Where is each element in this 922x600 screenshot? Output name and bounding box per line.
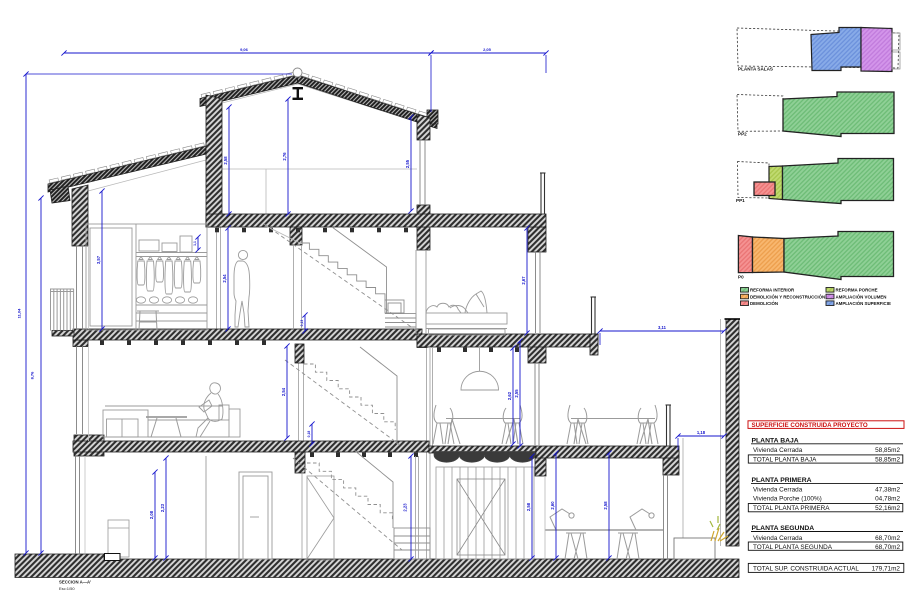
svg-text:AMPLIACIÓN VOLUMEN: AMPLIACIÓN VOLUMEN (836, 294, 887, 299)
svg-text:9,06: 9,06 (240, 47, 249, 52)
svg-text:179,71m2: 179,71m2 (872, 566, 901, 573)
svg-text:PP2: PP2 (738, 132, 747, 137)
svg-text:TOTAL SUP. CONSTRUIDA ACTUAL: TOTAL SUP. CONSTRUIDA ACTUAL (753, 566, 859, 573)
svg-text:Vivienda Porche (100%): Vivienda Porche (100%) (753, 495, 822, 502)
svg-text:2,58: 2,58 (526, 502, 531, 511)
svg-text:3,57: 3,57 (96, 255, 101, 264)
svg-text:Vivienda Cerrada: Vivienda Cerrada (753, 487, 803, 494)
svg-text:58,85m2: 58,85m2 (875, 457, 900, 464)
svg-text:Vivienda Cerrada: Vivienda Cerrada (753, 447, 803, 454)
svg-text:2,62: 2,62 (507, 391, 512, 400)
svg-text:AMPLIACIÓN SUPERFICIE: AMPLIACIÓN SUPERFICIE (836, 301, 891, 306)
svg-text:PP1: PP1 (736, 198, 745, 203)
svg-text:04,78m2: 04,78m2 (875, 495, 900, 502)
svg-text:0,13: 0,13 (300, 320, 304, 327)
svg-text:2,67: 2,67 (521, 276, 526, 285)
svg-text:3,11: 3,11 (658, 325, 667, 330)
svg-text:DEMOLICIÓN: DEMOLICIÓN (750, 301, 778, 306)
svg-text:2,76: 2,76 (282, 152, 287, 161)
svg-text:TOTAL PLANTA BAJA: TOTAL PLANTA BAJA (753, 457, 817, 464)
svg-text:8,76: 8,76 (30, 371, 35, 380)
svg-text:2,08: 2,08 (149, 510, 154, 519)
svg-text:68,70m2: 68,70m2 (875, 535, 900, 542)
svg-text:1,1: 1,1 (193, 241, 197, 246)
svg-text:REFORMA INTERIOR: REFORMA INTERIOR (750, 288, 795, 293)
svg-text:11,04: 11,04 (17, 308, 22, 319)
svg-text:Esc:1/50: Esc:1/50 (59, 586, 75, 591)
svg-text:2,54: 2,54 (222, 274, 227, 283)
svg-text:52,16m2: 52,16m2 (875, 505, 900, 512)
svg-text:0,18: 0,18 (307, 431, 311, 438)
svg-text:TOTAL PLANTA PRIMERA: TOTAL PLANTA PRIMERA (753, 505, 830, 512)
svg-text:Vivienda Cerrada: Vivienda Cerrada (753, 535, 803, 542)
svg-text:2,23: 2,23 (403, 503, 408, 512)
svg-text:68,70m2: 68,70m2 (875, 544, 900, 551)
svg-text:TOTAL PLANTA SEGUNDA: TOTAL PLANTA SEGUNDA (753, 544, 833, 551)
svg-text:DEMOLICIÓN Y RECONSTRUCCIÓN: DEMOLICIÓN Y RECONSTRUCCIÓN (750, 294, 825, 299)
svg-text:47,38m2: 47,38m2 (875, 487, 900, 494)
svg-text:REFORMA PORCHE: REFORMA PORCHE (836, 288, 878, 293)
svg-text:PLANTA SEGUNDA: PLANTA SEGUNDA (752, 525, 815, 532)
svg-text:58,85m2: 58,85m2 (875, 447, 900, 454)
svg-text:2,60: 2,60 (550, 501, 555, 510)
svg-text:2,55: 2,55 (514, 389, 519, 398)
svg-text:SUPERFICIE CONSTRUIDA PROYECTO: SUPERFICIE CONSTRUIDA PROYECTO (752, 422, 868, 429)
svg-text:2,58: 2,58 (223, 156, 228, 165)
svg-text:2,54: 2,54 (281, 387, 286, 396)
svg-text:2,05: 2,05 (483, 47, 492, 52)
svg-text:1,18: 1,18 (697, 430, 706, 435)
svg-text:P0: P0 (738, 275, 744, 280)
svg-text:2,23: 2,23 (160, 503, 165, 512)
svg-text:PLANTA SALAS: PLANTA SALAS (738, 67, 773, 72)
svg-text:2,55: 2,55 (405, 159, 410, 168)
svg-text:2,58: 2,58 (603, 501, 608, 510)
svg-text:SECCION A—A': SECCION A—A' (59, 580, 91, 585)
